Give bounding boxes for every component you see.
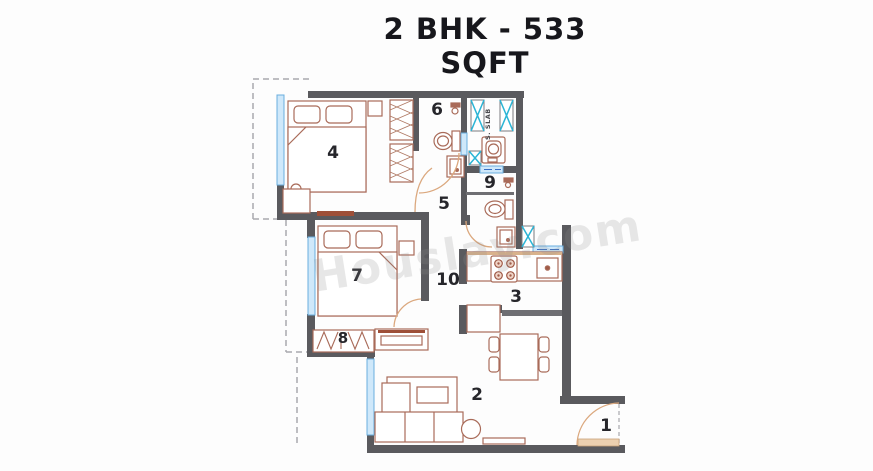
floor-plan-page: 2 BHK - 533 SQFT [0, 0, 873, 471]
dining-table-icon [489, 334, 549, 380]
window-bedroom7 [308, 237, 315, 315]
sink-icon [537, 258, 558, 278]
room-label-bedroom4: 4 [319, 142, 347, 164]
sofa-icon [375, 377, 525, 444]
wash-basin-icon [497, 227, 515, 247]
wardrobe-icon [390, 100, 413, 182]
room-label-entrance: 1 [592, 415, 620, 437]
room-label-toilet9: 9 [476, 172, 504, 194]
room-label-passage10: 10 [434, 269, 462, 291]
room-label-bedroom7: 7 [343, 265, 371, 287]
window-bedroom4 [277, 95, 284, 185]
room-label-passage5: 5 [430, 193, 458, 215]
window-living [367, 359, 374, 435]
door-arc-bedroom7 [394, 299, 421, 327]
room-label-living: 2 [463, 384, 491, 406]
stove-icon [491, 256, 517, 282]
fridge-icon [467, 305, 500, 332]
room-label-toilet6: 6 [423, 99, 451, 121]
side-table-icon [462, 420, 481, 439]
tv-unit-icon [375, 329, 428, 350]
floor-plan-drawing [0, 0, 873, 471]
room-label-wardrobe8: 8 [329, 327, 357, 349]
room-label-kitchen: 3 [502, 286, 530, 308]
entry-step [578, 439, 619, 446]
wash-basin-icon [447, 156, 464, 177]
service-slab-label: S. SLAB [484, 100, 496, 140]
washing-machine-icon [482, 137, 505, 163]
window-toilet6 [461, 133, 467, 155]
console-table-icon [483, 438, 525, 444]
